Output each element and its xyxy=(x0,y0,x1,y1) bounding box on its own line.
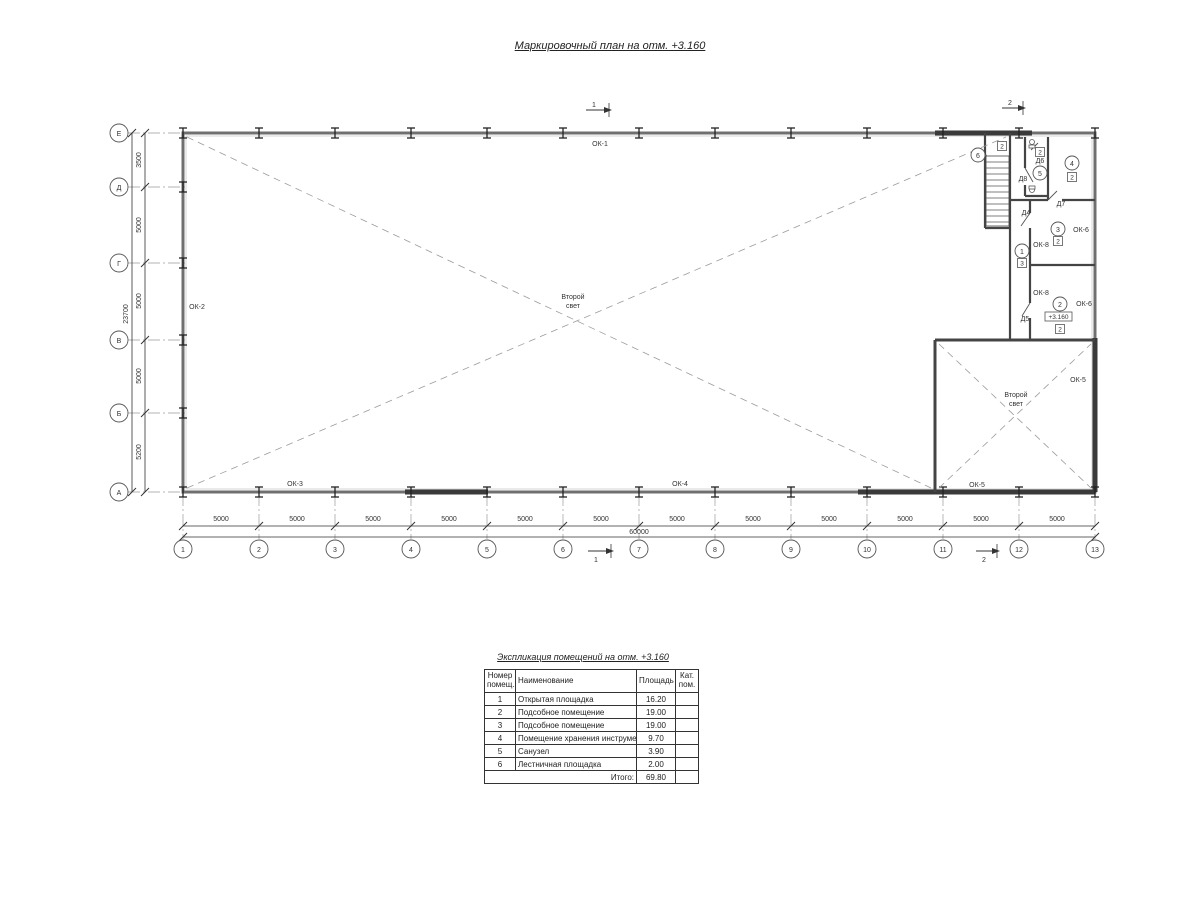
section-marker-1-bottom: 1 xyxy=(588,544,614,564)
room-name: Подсобное помещение xyxy=(516,719,637,732)
axis-label: 6 xyxy=(561,547,565,554)
dim-label: 5000 xyxy=(821,516,837,523)
axis-label: 11 xyxy=(939,547,946,554)
room-cat xyxy=(676,745,699,758)
room-area: 3.90 xyxy=(637,745,676,758)
axis-label: А xyxy=(117,490,122,497)
room-num: 3 xyxy=(485,719,516,732)
room-area: 16.20 xyxy=(637,693,676,706)
table-row: 1 Открытая площадка 16.20 xyxy=(485,693,699,706)
window-tag-ok8: ОК-8 xyxy=(1033,290,1049,297)
axis-label: 1 xyxy=(181,547,185,554)
level-mark-value: +3.160 xyxy=(1048,314,1068,321)
section-marker-2-top: 2 xyxy=(1002,100,1026,115)
dim-total-label: 60000 xyxy=(629,529,649,536)
axis-label: 4 xyxy=(409,547,413,554)
room-area: 2.00 xyxy=(637,758,676,771)
dim-label: 5000 xyxy=(441,516,457,523)
door-tag-d5: Д5 xyxy=(1021,316,1030,323)
floor-plan-drawing: 5000 5000 5000 5000 5000 5000 5000 5000 … xyxy=(0,0,1200,630)
window-tag-ok5: ОК-5 xyxy=(1070,377,1086,384)
category-number: 2 xyxy=(1056,239,1060,246)
total-value: 69.80 xyxy=(637,771,676,784)
table-total-row: Итого: 69.80 xyxy=(485,771,699,784)
section-number: 1 xyxy=(594,557,598,564)
dimension-ticks xyxy=(128,129,1099,541)
axis-label: 2 xyxy=(257,547,261,554)
window-door-tags: ОК-1 ОК-2 ОК-3 ОК-4 ОК-5 ОК-5 ОК-6 ОК-6 … xyxy=(189,141,1092,489)
dim-label: 5000 xyxy=(136,368,143,384)
window-tag-ok2: ОК-2 xyxy=(189,304,205,311)
dim-label: 5000 xyxy=(745,516,761,523)
category-number: 3 xyxy=(1020,261,1024,268)
room-num: 4 xyxy=(485,732,516,745)
section-number: 2 xyxy=(982,557,986,564)
level-mark: +3.160 xyxy=(1045,312,1072,321)
room-number: 4 xyxy=(1070,161,1074,168)
table-row: 3 Подсобное помещение 19.00 xyxy=(485,719,699,732)
section-marker-2-bottom: 2 xyxy=(976,544,1000,564)
col-header-name: Наименование xyxy=(516,670,637,693)
axis-label: 3 xyxy=(333,547,337,554)
door-tag-d7: Д7 xyxy=(1057,201,1066,208)
room-area: 9.70 xyxy=(637,732,676,745)
axis-label: 8 xyxy=(713,547,717,554)
room-cat xyxy=(676,758,699,771)
table-row: 4 Помещение хранения инструмента 9.70 xyxy=(485,732,699,745)
dim-label: 5000 xyxy=(517,516,533,523)
table-row: 5 Санузел 3.90 xyxy=(485,745,699,758)
void-diagonals xyxy=(187,137,1091,488)
axis-label: 10 xyxy=(863,547,871,554)
door-tag-d8: Д8 xyxy=(1019,176,1028,183)
total-label: Итого: xyxy=(485,771,637,784)
columns xyxy=(179,128,1099,497)
room-number: 5 xyxy=(1038,171,1042,178)
room-cat xyxy=(676,732,699,745)
dim-label: 5000 xyxy=(289,516,305,523)
room-num: 6 xyxy=(485,758,516,771)
dim-total-label: 23700 xyxy=(123,304,130,324)
dim-label: 5000 xyxy=(136,293,143,309)
second-light-labels: Второй свет Второй свет xyxy=(561,293,1027,408)
room-number: 6 xyxy=(976,153,980,160)
dim-label: 5000 xyxy=(213,516,229,523)
room-name: Подсобное помещение xyxy=(516,706,637,719)
window-tag-ok6: ОК-6 xyxy=(1076,301,1092,308)
axis-label: Б xyxy=(117,411,122,418)
col-header-area: Площадь xyxy=(637,670,676,693)
axis-label: 12 xyxy=(1015,547,1023,554)
window-tag-ok3: ОК-3 xyxy=(287,481,303,488)
explication-block: Экспликация помещений на отм. +3.160 Ном… xyxy=(484,652,682,784)
wc-fixtures xyxy=(1029,140,1035,193)
room-cat xyxy=(676,706,699,719)
col-header-cat: Кат. пом. xyxy=(676,670,699,693)
axis-label: Г xyxy=(117,261,121,268)
category-number: 2 xyxy=(1070,175,1074,182)
dim-label: 3500 xyxy=(136,152,143,168)
room-number: 3 xyxy=(1056,227,1060,234)
dim-label: 5000 xyxy=(973,516,989,523)
window-tag-ok6: ОК-6 xyxy=(1073,227,1089,234)
table-header-row: Номер помещ. Наименование Площадь Кат. п… xyxy=(485,670,699,693)
window-tag-ok8: ОК-8 xyxy=(1033,242,1049,249)
axis-bubbles-bottom: 1 2 3 4 5 6 7 8 9 10 11 12 13 xyxy=(174,540,1104,558)
room-number: 2 xyxy=(1058,302,1062,309)
total-cat-empty xyxy=(676,771,699,784)
dim-label: 5000 xyxy=(1049,516,1065,523)
room-area: 19.00 xyxy=(637,719,676,732)
table-row: 6 Лестничная площадка 2.00 xyxy=(485,758,699,771)
room-cat xyxy=(676,693,699,706)
axis-label: 5 xyxy=(485,547,489,554)
category-number: 2 xyxy=(1058,327,1062,334)
door-tag-d6: Д6 xyxy=(1036,158,1045,165)
section-marker-1-top: 1 xyxy=(586,102,612,117)
second-light-text: Второй xyxy=(561,293,584,301)
axis-label: 7 xyxy=(637,547,641,554)
window-tag-ok1: ОК-1 xyxy=(592,141,608,148)
door-tag-d4: Д4 xyxy=(1022,210,1031,217)
room-num: 1 xyxy=(485,693,516,706)
room-bubbles: 1 2 3 4 5 6 xyxy=(971,148,1079,311)
section-number: 2 xyxy=(1008,100,1012,107)
second-light-text: Второй xyxy=(1004,391,1027,399)
room-name: Помещение хранения инструмента xyxy=(516,732,637,745)
table-row: 2 Подсобное помещение 19.00 xyxy=(485,706,699,719)
second-light-text: свет xyxy=(566,303,581,310)
axis-label: 9 xyxy=(789,547,793,554)
explication-title: Экспликация помещений на отм. +3.160 xyxy=(484,652,682,662)
axis-label: Д xyxy=(117,185,122,192)
dim-label: 5000 xyxy=(365,516,381,523)
room-number: 1 xyxy=(1020,249,1024,256)
dim-label: 5000 xyxy=(897,516,913,523)
room-name: Санузел xyxy=(516,745,637,758)
col-header-number: Номер помещ. xyxy=(485,670,516,693)
axis-label: 13 xyxy=(1091,547,1099,554)
staircase xyxy=(978,155,1009,226)
dimension-lines xyxy=(132,133,1095,537)
window-tag-ok5: ОК-5 xyxy=(969,482,985,489)
room-name: Лестничная площадка xyxy=(516,758,637,771)
second-light-text: свет xyxy=(1009,401,1024,408)
room-num: 5 xyxy=(485,745,516,758)
window-tag-ok4: ОК-4 xyxy=(672,481,688,488)
dim-label: 5000 xyxy=(669,516,685,523)
room-cat xyxy=(676,719,699,732)
room-area: 19.00 xyxy=(637,706,676,719)
explication-table: Номер помещ. Наименование Площадь Кат. п… xyxy=(484,669,699,784)
category-number: 2 xyxy=(1038,150,1042,157)
dim-label: 5200 xyxy=(136,444,143,460)
outer-walls xyxy=(183,133,1095,492)
section-number: 1 xyxy=(592,102,596,109)
drawing-sheet: Маркировочный план на отм. +3.160 xyxy=(0,0,1200,900)
room-num: 2 xyxy=(485,706,516,719)
axis-label: В xyxy=(117,338,122,345)
room-name: Открытая площадка xyxy=(516,693,637,706)
axis-label: Е xyxy=(117,131,122,138)
dim-label: 5000 xyxy=(593,516,609,523)
category-number: 2 xyxy=(1000,144,1004,151)
dim-label: 5000 xyxy=(136,217,143,233)
